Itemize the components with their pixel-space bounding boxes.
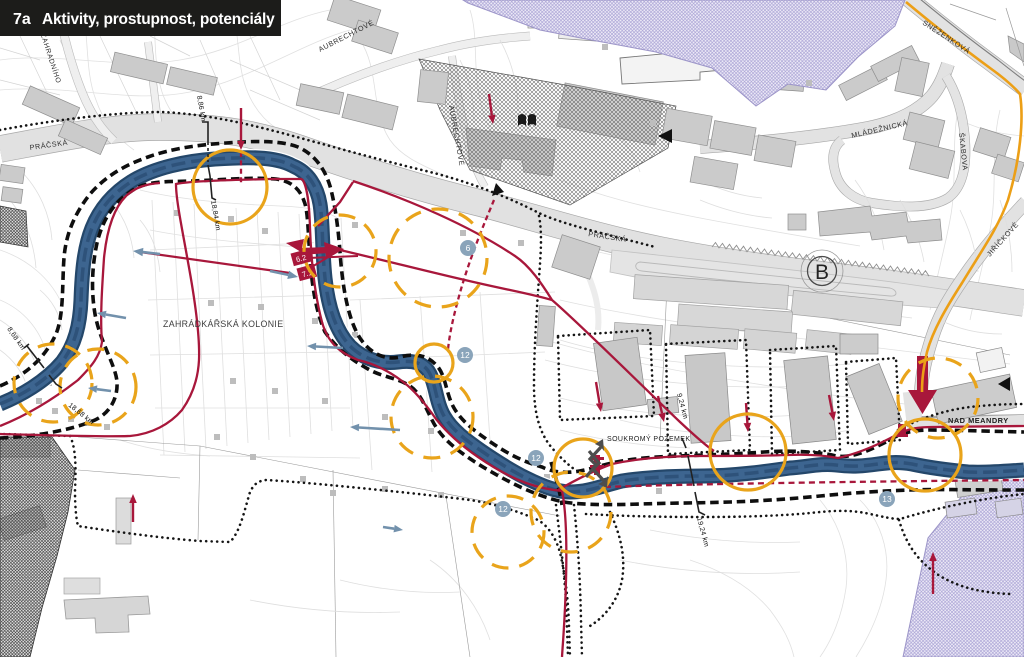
svg-text:6: 6: [466, 243, 471, 253]
svg-text:Aktivity, prostupnost, potenci: Aktivity, prostupnost, potenciály: [42, 11, 275, 28]
svg-text:12: 12: [498, 504, 508, 514]
svg-text:13: 13: [882, 494, 892, 504]
svg-text:12: 12: [460, 350, 470, 360]
svg-text:SOUKROMÝ POZEMEK: SOUKROMÝ POZEMEK: [607, 434, 690, 443]
svg-text:NAD MEANDRY: NAD MEANDRY: [948, 416, 1009, 425]
svg-text:7a: 7a: [13, 11, 31, 28]
svg-text:ZAHRÁDKÁŘSKÁ KOLONIE: ZAHRÁDKÁŘSKÁ KOLONIE: [163, 319, 283, 329]
svg-text:B: B: [815, 261, 829, 284]
svg-text:12: 12: [531, 453, 541, 463]
